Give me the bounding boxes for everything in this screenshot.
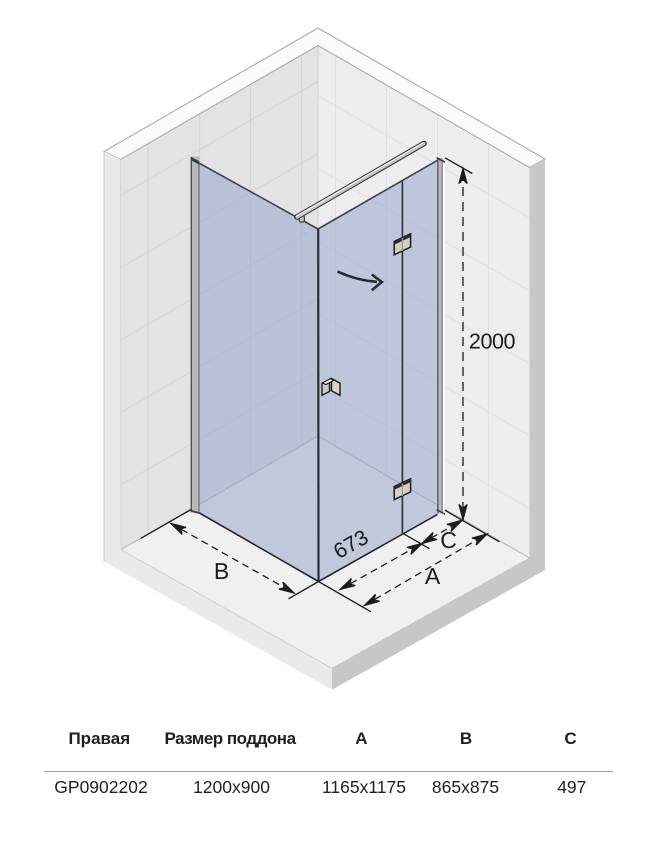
svg-text:2000: 2000 xyxy=(469,329,516,353)
svg-text:A: A xyxy=(425,563,441,589)
svg-text:B: B xyxy=(214,558,229,584)
svg-text:C: C xyxy=(440,527,457,553)
